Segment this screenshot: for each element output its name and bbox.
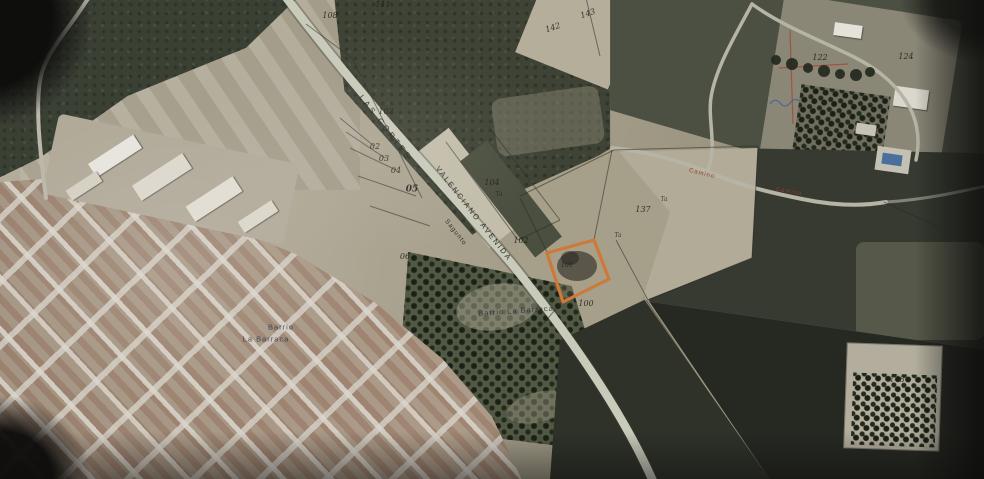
photo-layers: LAS CORTES VALENCIANO AVENIDA Sagunto Ca…	[0, 0, 984, 479]
aerial-map-photo: LAS CORTES VALENCIANO AVENIDA Sagunto Ca…	[0, 0, 984, 479]
photo-vignette	[0, 0, 984, 479]
